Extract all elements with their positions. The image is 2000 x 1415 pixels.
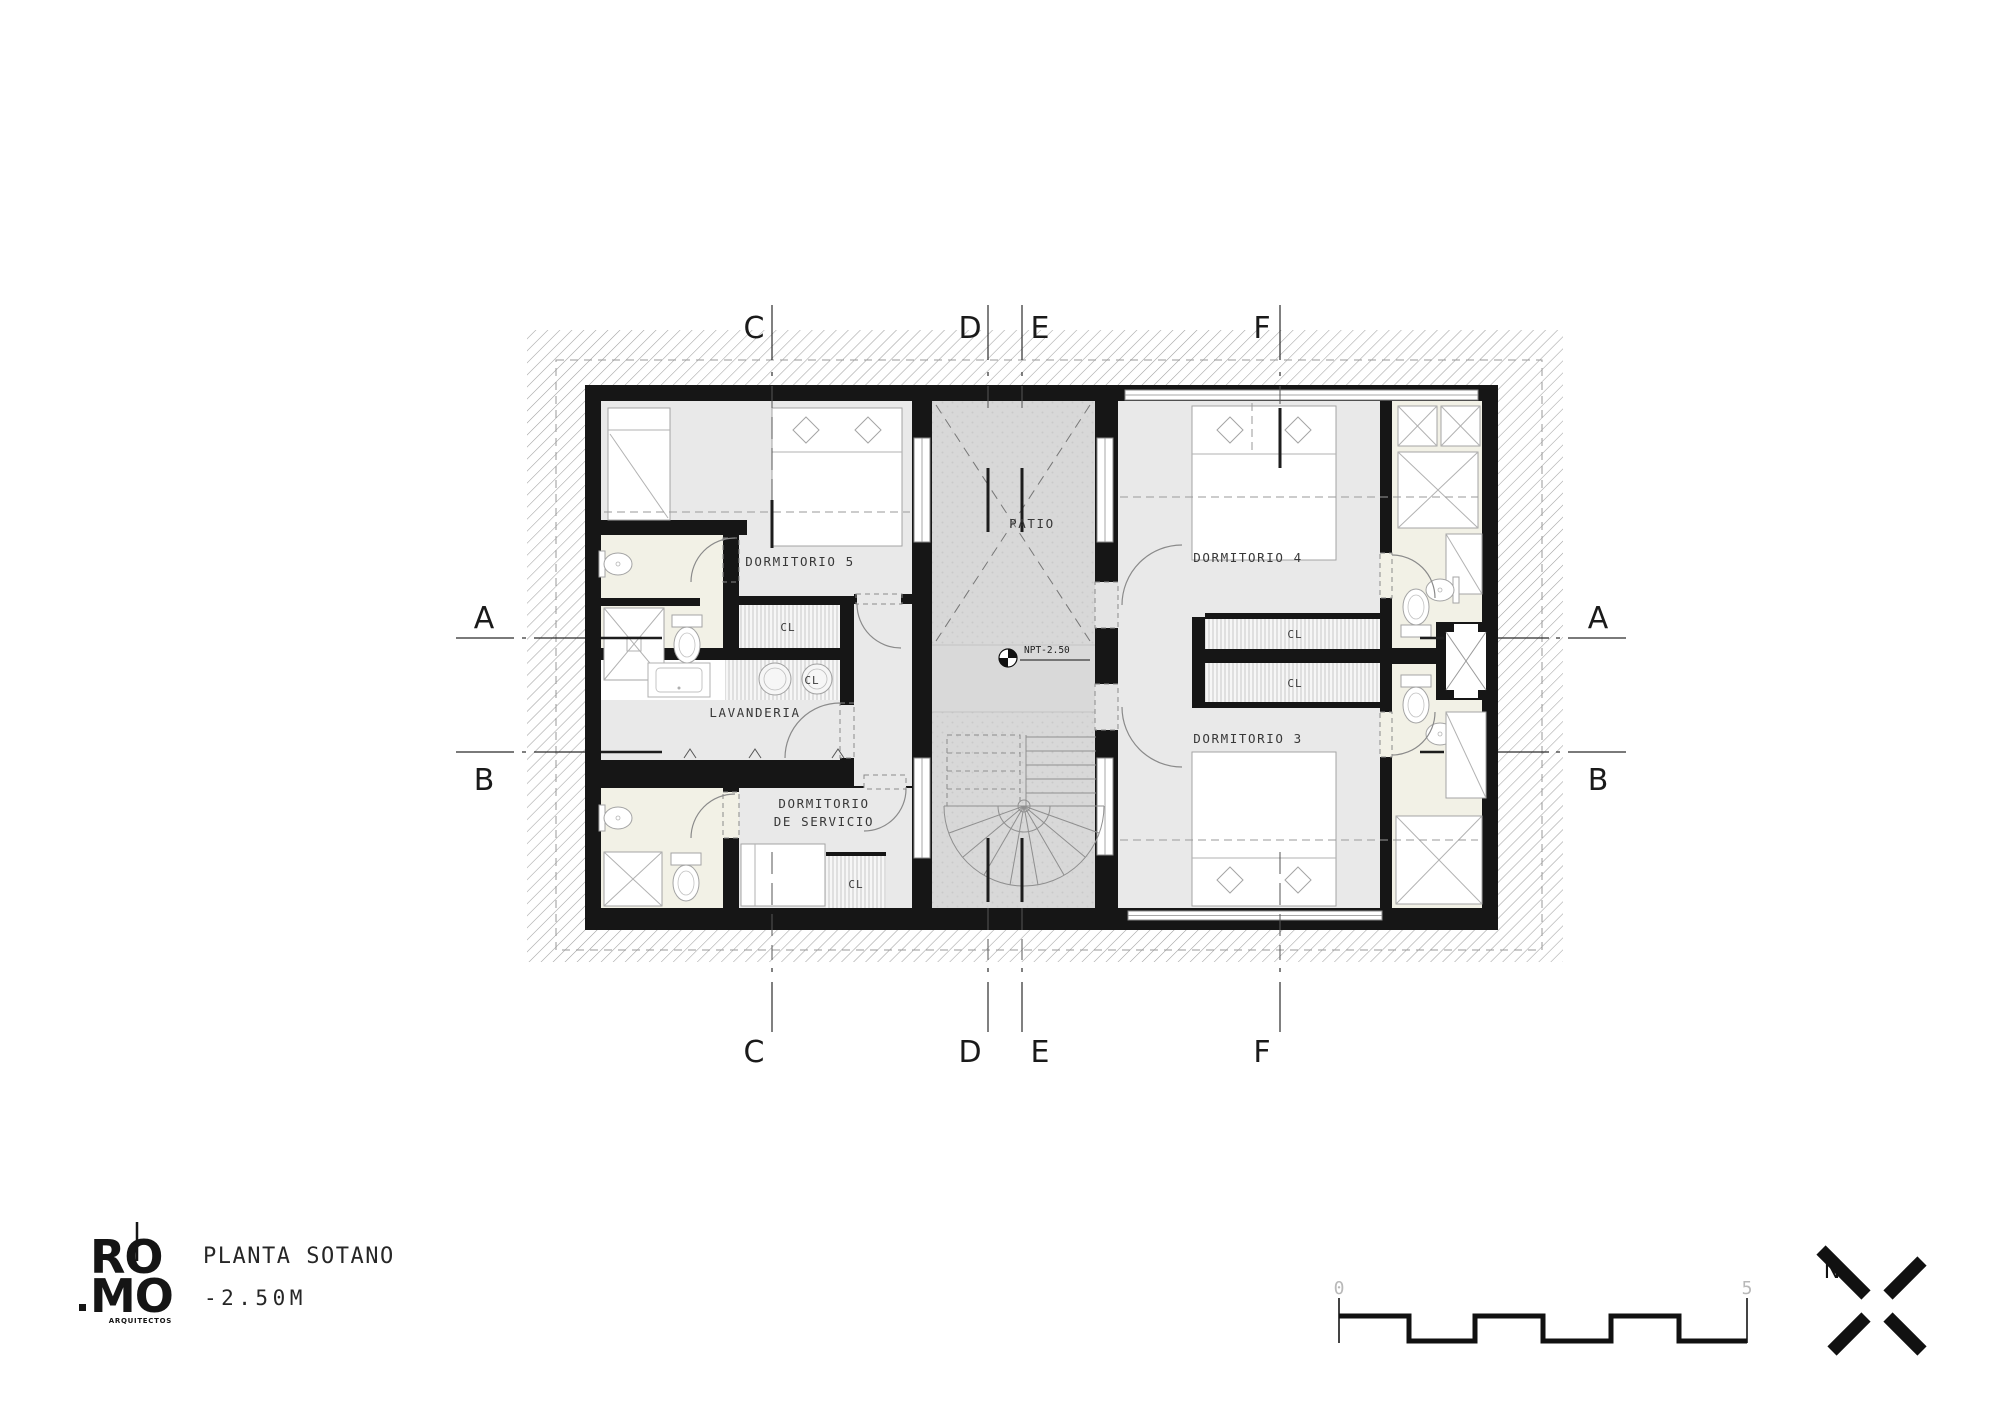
grid-letter-d-bottom: D (958, 1035, 981, 1070)
level-marker-text: NPT-2.50 (1024, 645, 1070, 656)
grid-letter-f-bottom: F (1253, 1035, 1270, 1070)
label-dormitorio4: DORMITORIO 4 (1193, 550, 1303, 565)
bed-double-dorm5 (772, 408, 902, 546)
grid-letter-a-right: A (1588, 601, 1609, 636)
plan-level: -2.50M (204, 1286, 307, 1310)
label-dormitorio3: DORMITORIO 3 (1193, 731, 1303, 746)
grid-letter-b-right: B (1588, 763, 1609, 798)
scale-bar: 0 5 (1334, 1278, 1753, 1343)
title-block: RO MO ARQUITECTOS PLANTA SOTANO -2.50M (79, 1222, 395, 1325)
grid-letter-e-bottom: E (1031, 1035, 1050, 1070)
label-servicio-line1: DORMITORIO (778, 796, 869, 811)
bed-single-servicio (741, 844, 825, 906)
bed-double-dorm3 (1192, 752, 1336, 906)
label-closet-dorm5: CL (780, 621, 795, 634)
scale-start: 0 (1334, 1278, 1345, 1299)
scale-end: 5 (1742, 1278, 1753, 1299)
floor-plan-svg: C D E F C D E F A A B B DORMITORIO 5 CL … (0, 0, 2000, 1415)
grid-letter-b-left: B (474, 763, 495, 798)
plan-title: PLANTA SOTANO (203, 1244, 395, 1269)
north-arrow-icon (1821, 1250, 1922, 1351)
drawing-sheet: C D E F C D E F A A B B DORMITORIO 5 CL … (0, 0, 2000, 1415)
bed-double-dorm4 (1192, 406, 1336, 560)
bed-single-dorm5 (608, 408, 670, 520)
label-closet-dorm3: CL (1287, 677, 1302, 690)
label-closet-lavanderia: CL (804, 674, 819, 687)
north-arrow: N (1821, 1250, 1922, 1351)
label-closet-dorm4: CL (1287, 628, 1302, 641)
grid-letter-c-bottom: C (744, 1035, 765, 1070)
label-closet-servicio: CL (848, 878, 863, 891)
elevator (1436, 622, 1496, 700)
romo-logo: RO MO ARQUITECTOS (79, 1222, 173, 1325)
logo-line2: MO (90, 1269, 173, 1323)
grid-letter-d-top: D (958, 311, 981, 346)
toilet-icon (1401, 675, 1431, 723)
logo-subtitle: ARQUITECTOS (109, 1317, 172, 1325)
label-lavanderia: LAVANDERIA (709, 705, 800, 720)
grid-letter-f-top: F (1253, 311, 1270, 346)
grid-letter-e-top: E (1031, 311, 1050, 346)
toilet-icon (672, 615, 702, 663)
grid-letter-c-top: C (744, 311, 765, 346)
label-servicio-line2: DE SERVICIO (774, 814, 874, 829)
logo-dot (79, 1304, 86, 1311)
toilet-icon (1401, 589, 1431, 637)
toilet-icon (671, 853, 701, 901)
label-dormitorio5: DORMITORIO 5 (745, 554, 855, 569)
grid-letter-a-left: A (474, 601, 495, 636)
label-patio: PATIO (1009, 516, 1055, 531)
